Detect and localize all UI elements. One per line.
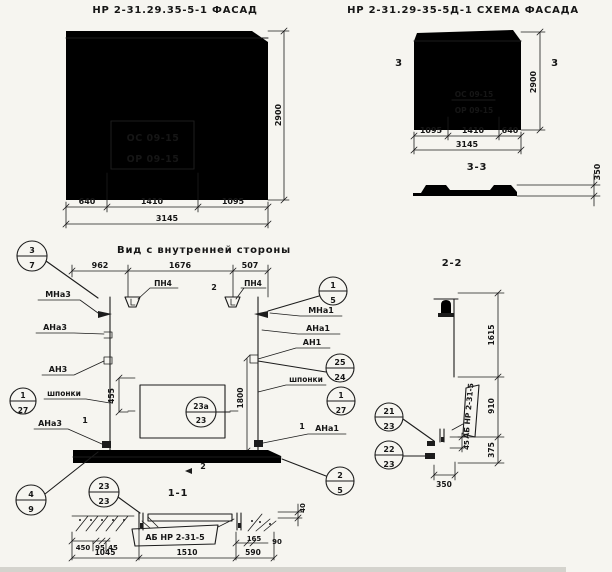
dim-label-height: 2900 [529, 70, 538, 93]
callout-top: 3 [29, 246, 35, 255]
window-mark-top: ОС 09-15 [455, 90, 493, 99]
dim-label: 1410 [462, 126, 485, 135]
dim-label: 640 [502, 126, 519, 135]
section-2-2: 2-2 АБ НР 2-31-5 45 1615 910 375 350 [375, 258, 504, 489]
callout-2-5: 2 5 [282, 459, 354, 495]
dim-label: 962 [92, 261, 109, 270]
anchor-label-ana3: АНа3 [43, 323, 67, 332]
schema-panel-outline [414, 30, 521, 130]
callout-bottom: 5 [337, 486, 343, 495]
callout-top: 25 [334, 358, 346, 367]
callout-4-9: 4 9 [16, 452, 98, 515]
window-mark-bottom: ОР 09-15 [127, 154, 180, 165]
section-3-3-profile [413, 185, 517, 196]
cut-marker-label: 2 [200, 462, 206, 471]
callout-bottom: 23 [196, 416, 206, 425]
cut-marker-1-right: 1 [288, 419, 305, 435]
anchor-label-pn4: ПН4 [154, 279, 172, 288]
panel-mark-label: АБ НР 2-31-5 [462, 383, 476, 439]
callout-top: 4 [28, 490, 34, 499]
callout-bottom: 23 [98, 497, 109, 506]
section-marker-label: 3 [395, 58, 403, 69]
dim-label: 1676 [169, 261, 192, 270]
section-2-2-title: 2-2 [442, 258, 462, 269]
section-marker-3-right: 3 [551, 52, 563, 70]
window-mark-bottom: ОР 09-15 [455, 106, 493, 115]
window-mark-top: ОС 09-15 [127, 133, 180, 144]
callout-top: 23а [193, 402, 209, 411]
anchor-label-ana1-bottom: АНа1 [315, 424, 339, 433]
dim-label: 507 [242, 261, 259, 270]
cut-marker-label: 2 [211, 283, 217, 292]
scan-edge-artifact [0, 567, 566, 572]
callout-bottom: 27 [18, 406, 28, 415]
cut-marker-2-top: 2 [207, 280, 220, 292]
dim-label: 910 [487, 398, 496, 414]
callout-23a-23: 23а 23 [186, 397, 230, 427]
dim-label: 450 [76, 544, 91, 552]
dim-label: 350 [436, 480, 452, 489]
top-notch-left [125, 297, 140, 307]
dim-label: 90 [272, 538, 282, 546]
callout-bottom: 23 [383, 460, 394, 469]
dim-label: 165 [247, 535, 262, 543]
cut-marker-label: 1 [299, 422, 305, 431]
facade-panel-outline [66, 31, 268, 200]
dim-label: 3145 [456, 140, 479, 149]
callout-top: 1 [338, 391, 343, 400]
dim-label: 1095 [420, 126, 443, 135]
dim-label: 640 [79, 197, 96, 206]
anchor-label-an1: АН1 [303, 338, 322, 347]
callout-top: 22 [383, 445, 394, 454]
section-marker-3-left: 3 [392, 52, 404, 70]
drawing-canvas: НР 2-31.29.35-5-1 ФАСАД ОС 09-15 ОР 09-1… [0, 0, 612, 572]
callout-bottom: 9 [28, 505, 34, 514]
panel-mark-label: АБ НР 2-31-5 [145, 533, 205, 542]
callout-bottom: 23 [383, 422, 394, 431]
callout-1-27-left: 1 27 [10, 388, 36, 415]
drawing-sheet: НР 2-31.29.35-5-1 ФАСАД ОС 09-15 ОР 09-1… [0, 0, 612, 572]
callout-bottom: 24 [334, 373, 346, 382]
label-shponki: шпонки [289, 375, 323, 384]
anchor-label-mna1: МНа1 [308, 306, 334, 315]
dim-label: 375 [487, 442, 496, 458]
callout-top: 1 [20, 391, 25, 400]
callout-top: 23 [98, 482, 109, 491]
callout-top: 1 [330, 281, 336, 290]
section-block-left [72, 512, 134, 531]
dim-label: 1410 [141, 197, 164, 206]
section-3-3: 3-3 350 [413, 162, 602, 206]
callout-22-23: 22 23 [375, 441, 427, 469]
section-1-1: 1-1 23 23 АБ НР 2-31-5 40 [69, 477, 307, 561]
anchor-label-pn4: ПН4 [244, 279, 262, 288]
callout-bottom: 27 [336, 406, 346, 415]
dim-label: 455 [107, 388, 116, 404]
inner-view-drawing: Вид с внутренней стороны 962 1676 507 ПН… [10, 241, 355, 515]
dim-label: 3145 [156, 214, 179, 223]
wall-window-recess [434, 377, 458, 437]
callout-bottom: 5 [330, 296, 336, 305]
section-1-1-title: 1-1 [168, 488, 188, 499]
section-marker-label: 3 [551, 58, 559, 69]
inner-view-title: Вид с внутренней стороны [117, 245, 291, 256]
label-shponki: шпонки [47, 389, 81, 398]
schema-title: НР 2-31.29-35-5Д-1 СХЕМА ФАСАДА [347, 5, 579, 16]
callout-bottom: 7 [29, 261, 35, 270]
facade-drawing: НР 2-31.29.35-5-1 ФАСАД ОС 09-15 ОР 09-1… [63, 5, 289, 228]
dim-label: 1615 [487, 325, 496, 346]
top-notch-right [225, 297, 240, 307]
cut-marker-1-left: 1 [70, 413, 88, 429]
callout-21-23: 21 23 [375, 403, 434, 441]
anchor-label-an3: АН3 [49, 365, 67, 374]
section-slab-middle [148, 514, 232, 521]
dim-label-height: 2900 [274, 103, 283, 126]
dim-label: 1045 [95, 548, 116, 557]
facade-title: НР 2-31.29.35-5-1 ФАСАД [92, 5, 257, 16]
anchor-label-mna3: МНа3 [45, 290, 71, 299]
callout-top: 21 [383, 407, 395, 416]
dim-label: 1510 [177, 548, 198, 557]
callout-23-23: 23 23 [89, 477, 140, 513]
callout-top: 2 [337, 471, 343, 480]
cut-marker-label: 1 [82, 416, 88, 425]
lifting-loop [441, 300, 451, 314]
dim-label: 350 [593, 163, 602, 180]
anchor-label-ana1: АНа1 [306, 324, 330, 333]
callout-1-27-right: 1 27 [327, 387, 355, 415]
dim-label: 40 [299, 503, 307, 513]
dim-label: 45 [463, 440, 471, 450]
anchor-label-ana3-bottom: АНа3 [38, 419, 62, 428]
dim-label: 1800 [236, 388, 245, 409]
section-3-3-title: 3-3 [467, 162, 487, 173]
dim-label: 1095 [222, 197, 245, 206]
inner-panel-outline [98, 297, 268, 450]
facade-schema-drawing: НР 2-31.29-35-5Д-1 СХЕМА ФАСАДА ОС 09-15… [347, 5, 602, 206]
dim-label: 590 [245, 548, 261, 557]
